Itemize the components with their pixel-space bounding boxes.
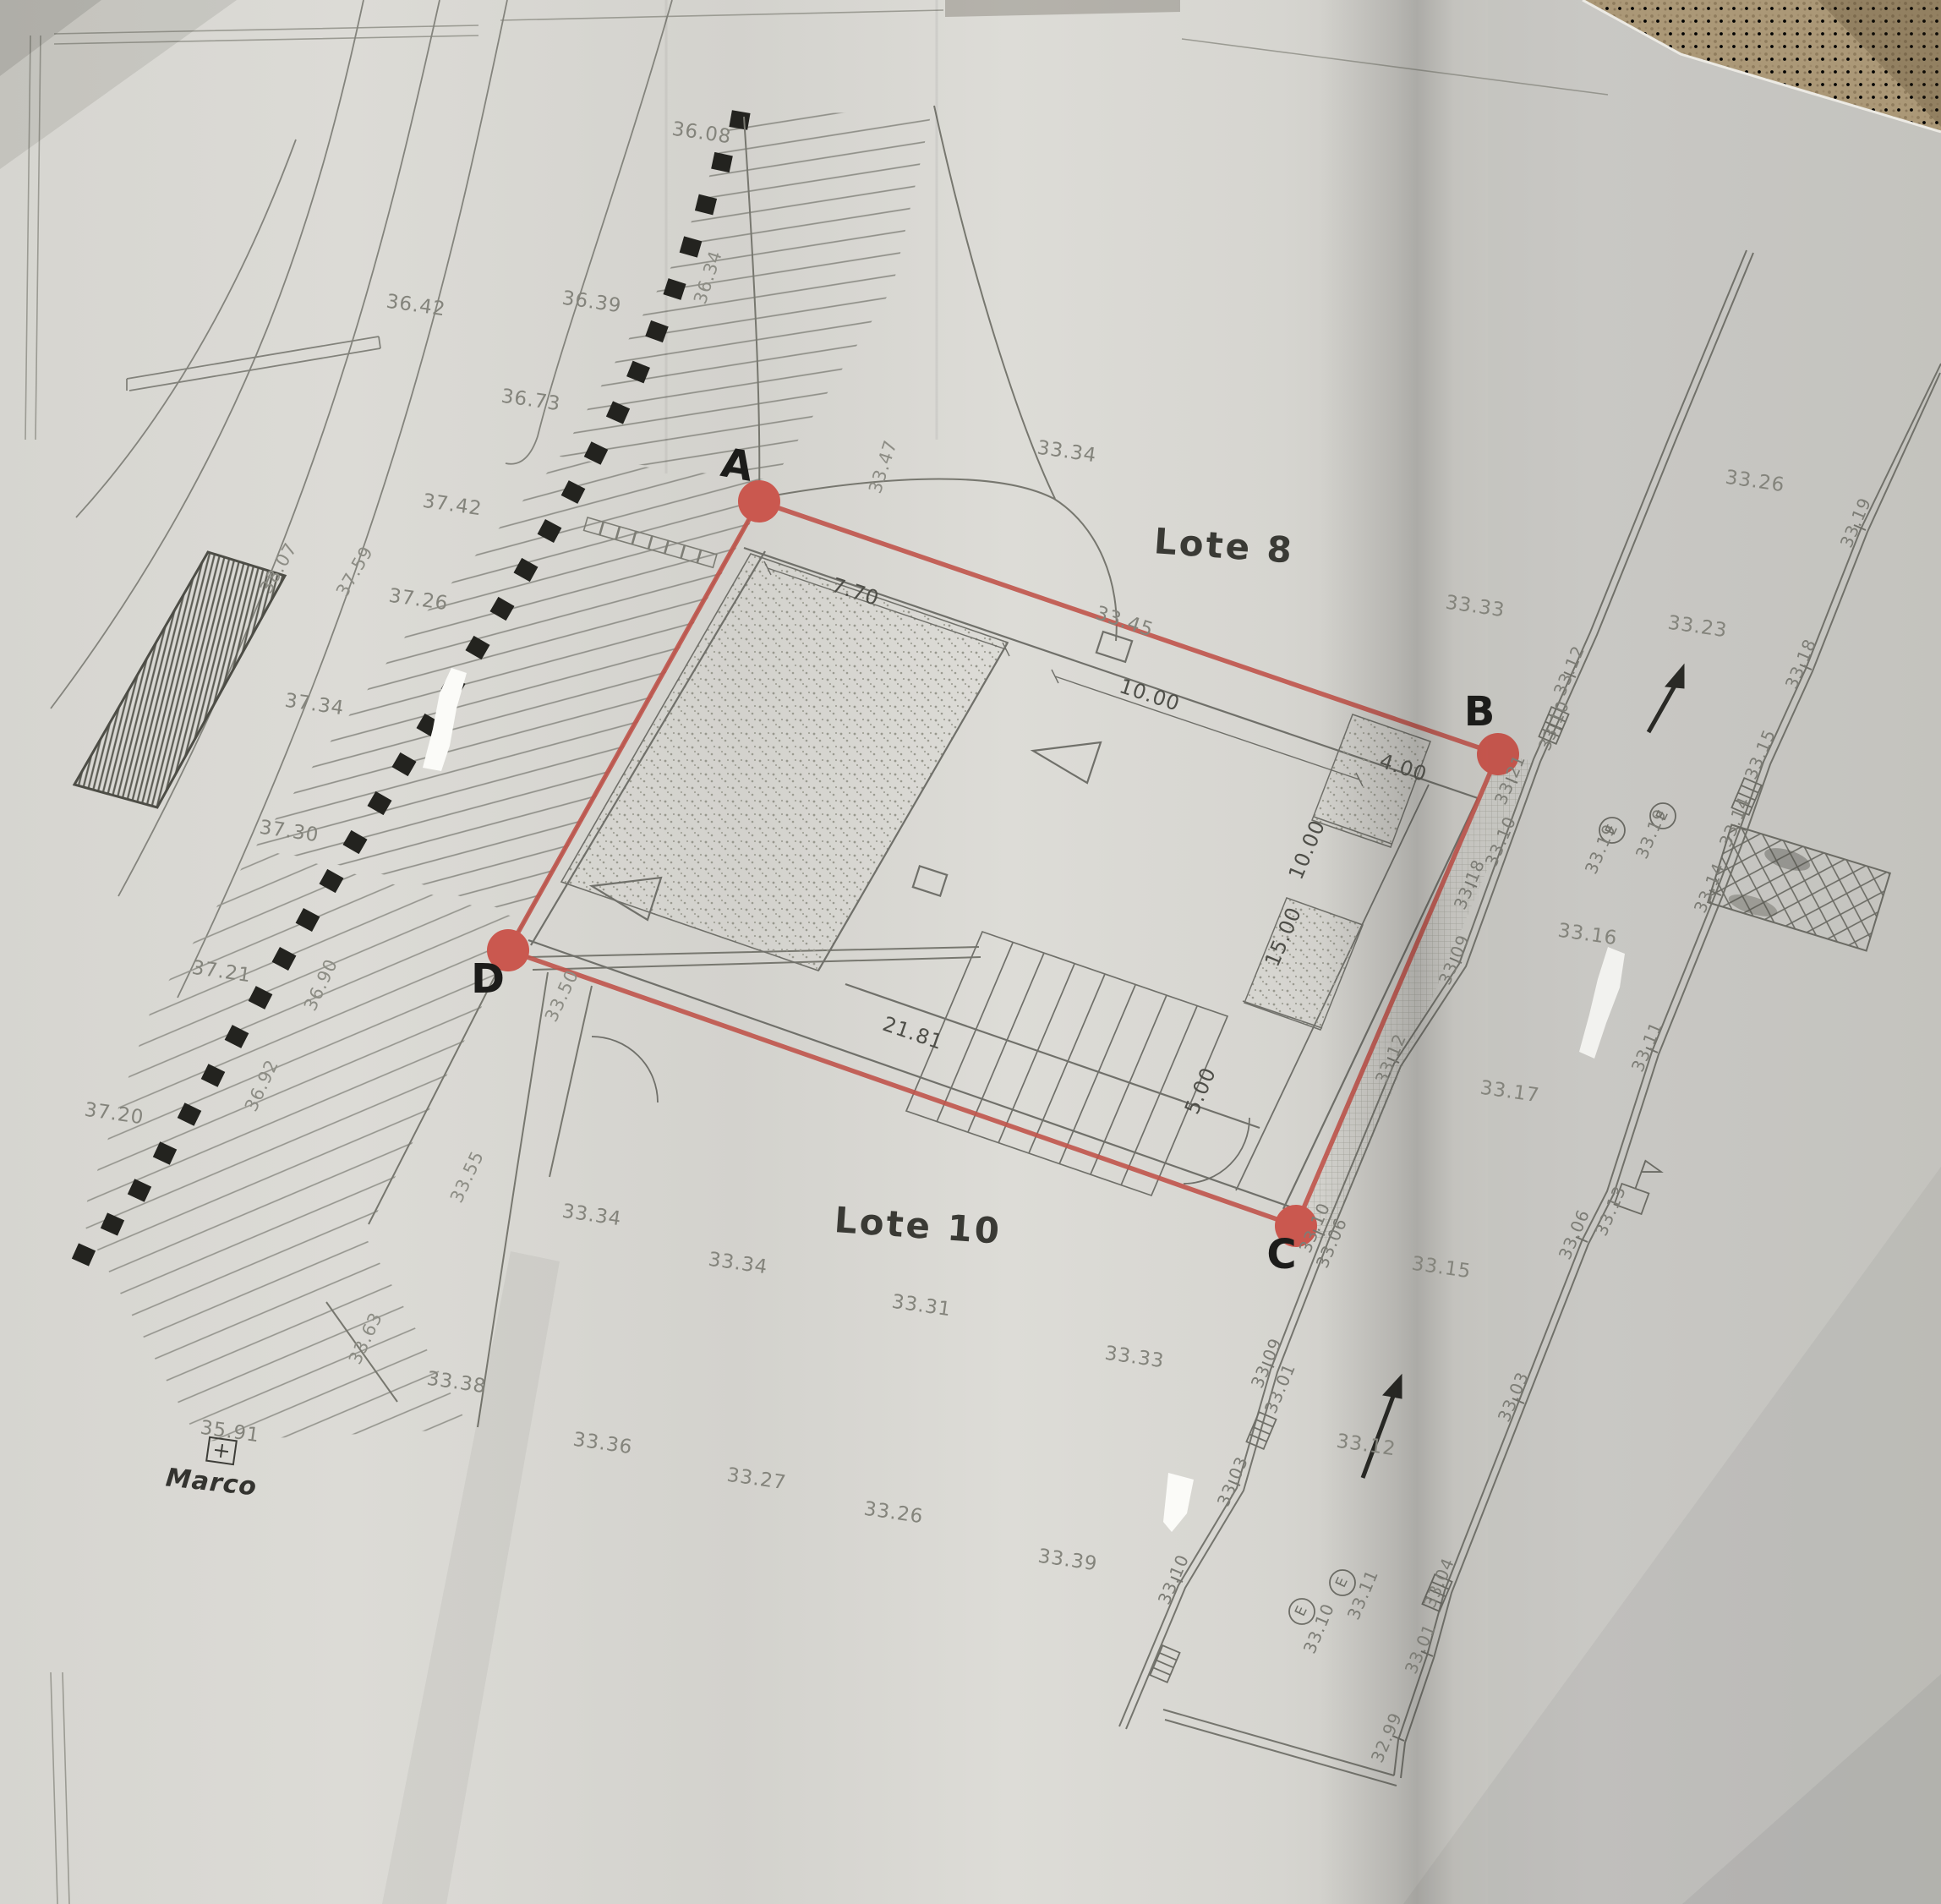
- spot-elevation: 33.47: [867, 438, 900, 495]
- street-elevation: 33.18: [1452, 856, 1488, 911]
- street-elevation: 33.13: [1593, 1183, 1629, 1238]
- spot-elevation: 33.38: [425, 1370, 487, 1398]
- spot-elevation: 36.08: [670, 120, 732, 148]
- street-elevation: 33.11: [1629, 1019, 1665, 1074]
- spot-elevation: 37.30: [258, 818, 320, 846]
- pole-elevation: 33.11: [1345, 1567, 1381, 1622]
- dimension-label: 4.00: [1377, 751, 1430, 785]
- spot-elevation: 36.42: [385, 293, 446, 320]
- dimension-label: 5.00: [1182, 1064, 1220, 1117]
- spot-elevation: 37.42: [421, 492, 483, 520]
- spot-elevation: 33.12: [1335, 1432, 1397, 1460]
- street-elevation: 33.01: [1402, 1621, 1439, 1676]
- street-elevation: 33.14: [1692, 860, 1728, 915]
- spot-elevation: 36.39: [560, 289, 622, 317]
- spot-elevation: 33.27: [725, 1466, 787, 1494]
- spot-elevation: 36.34: [692, 249, 725, 306]
- spot-elevation: 36.90: [302, 956, 342, 1014]
- spot-elevation: 33.50: [543, 967, 582, 1025]
- spot-elevation: 33.31: [890, 1293, 952, 1321]
- street-elevation: 33.03: [1495, 1369, 1532, 1424]
- street-elevation: 33.04: [1421, 1555, 1457, 1610]
- photo-of-site-plan: ABCDLote 8Lote 10Marco35.917.7033.4510.0…: [0, 0, 1941, 1904]
- label-layer: ABCDLote 8Lote 10Marco35.917.7033.4510.0…: [0, 0, 1941, 1904]
- street-elevation: 33.12: [1373, 1031, 1409, 1086]
- spot-elevation: 33.39: [1036, 1547, 1098, 1575]
- street-elevation: 33.18: [1783, 636, 1819, 691]
- dimension-label: 15.00: [1262, 904, 1305, 969]
- lot-title-10: Lote 10: [834, 1202, 1003, 1250]
- spot-elevation: 33.33: [1444, 594, 1506, 621]
- corner-label-a: A: [719, 442, 757, 488]
- corner-label-b: B: [1464, 692, 1495, 732]
- street-elevation: 33.03: [1215, 1453, 1251, 1508]
- dimension-label: 10.00: [1117, 676, 1183, 714]
- street-elevation: 33.09: [1436, 932, 1473, 987]
- spot-elevation: 33.26: [862, 1500, 924, 1528]
- lot-title-8: Lote 8: [1153, 523, 1296, 568]
- dimension-label: 7.70: [829, 575, 882, 610]
- utility-pole-letter: E: [1334, 1576, 1351, 1590]
- street-elevation: 33.06: [1556, 1206, 1593, 1261]
- spot-elevation: 33.34: [560, 1202, 622, 1230]
- street-elevation: 33.10: [1483, 813, 1519, 868]
- street-elevation: 33.12: [1551, 643, 1588, 698]
- spot-elevation: 33.45: [1093, 604, 1156, 641]
- spot-elevation: 33.33: [1103, 1344, 1165, 1372]
- spot-elevation: 37.26: [387, 587, 449, 615]
- spot-elevation: 33.36: [571, 1431, 633, 1458]
- spot-elevation: 33.34: [707, 1250, 768, 1278]
- dimension-label: 21.81: [880, 1014, 946, 1053]
- spot-elevation: 37.21: [190, 959, 252, 987]
- street-elevation: 32.99: [1369, 1710, 1405, 1764]
- benchmark-label: Marco: [165, 1465, 259, 1500]
- benchmark-elevation: 35.91: [199, 1419, 260, 1447]
- street-elevation: 33.10: [1156, 1551, 1192, 1606]
- corner-label-c: C: [1266, 1234, 1296, 1275]
- corner-label-d: D: [471, 959, 505, 999]
- spot-elevation: 33.55: [448, 1148, 488, 1206]
- spot-elevation: 38.07: [258, 540, 301, 597]
- street-elevation: 33.10: [1536, 698, 1572, 752]
- spot-elevation: 33.23: [1666, 614, 1728, 642]
- dimension-label: 10.00: [1286, 817, 1329, 882]
- street-elevation: 33.15: [1742, 726, 1779, 781]
- street-elevation: 33.14: [1717, 794, 1753, 849]
- utility-pole-letter: E: [1293, 1605, 1310, 1619]
- spot-elevation: 37.59: [334, 544, 377, 600]
- spot-elevation: 37.34: [283, 692, 345, 719]
- spot-elevation: 33.16: [1556, 922, 1618, 949]
- street-elevation: 33.21: [1492, 752, 1528, 807]
- spot-elevation: 33.17: [1479, 1079, 1540, 1107]
- spot-elevation: 33.15: [1410, 1255, 1472, 1283]
- spot-elevation: 37.20: [83, 1101, 145, 1129]
- spot-elevation: 33.26: [1724, 468, 1785, 496]
- spot-elevation: 36.73: [500, 387, 561, 415]
- spot-elevation: 33.34: [1036, 439, 1097, 467]
- street-elevation: 33.19: [1838, 495, 1874, 550]
- spot-elevation: 33.63: [347, 1310, 386, 1367]
- spot-elevation: 36.92: [243, 1057, 282, 1114]
